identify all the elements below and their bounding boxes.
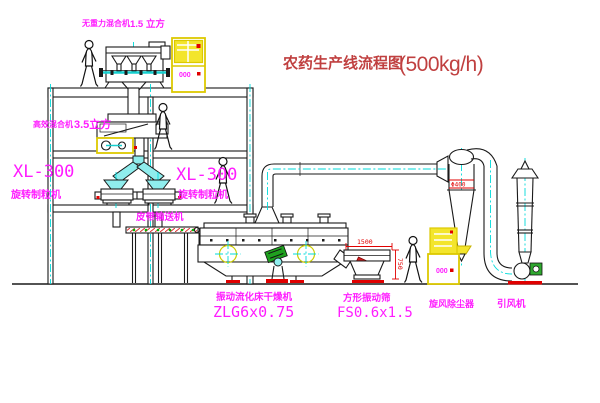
page-title: 农药生产线流程图 (282, 54, 403, 72)
label-efficiency-mixer-size: 3.5立方 (74, 117, 111, 131)
cyclone-downpipe (484, 160, 512, 281)
diagram-canvas: 000 (0, 0, 600, 403)
production-line-drawing: 000 (0, 0, 600, 403)
label-gravity-mixer: 无重力混合机 (81, 18, 130, 28)
sieve-height-dimension: 750 (396, 258, 404, 270)
induced-draft-fan (508, 263, 542, 285)
label-sieve-name: 方形振动筛 (343, 292, 391, 304)
person-figure-ground (405, 237, 423, 283)
control-cabinet-right: 000 (428, 228, 459, 284)
control-cabinet-top: 000 (172, 38, 205, 92)
label-belt-conveyor: 皮带输送机 (135, 211, 184, 223)
belt-conveyor (126, 227, 208, 283)
label-granulator-center-model: XL-300 (176, 165, 237, 185)
cyclone-diameter-note: Φ400 (451, 182, 466, 189)
label-sieve-model: FS0.6x1.5 (337, 305, 413, 321)
granulator-left (95, 172, 139, 227)
label-dryer-name: 振动流化床干燥机 (216, 291, 293, 303)
label-granulator-left-name: 旋转制粒机 (10, 188, 61, 201)
label-granulator-left-model: XL-300 (13, 162, 74, 182)
cabinet-right-display: 000 (436, 268, 448, 275)
exhaust-duct (262, 156, 448, 210)
label-efficiency-mixer: 高效混合机 (33, 119, 73, 129)
page-title-capacity: (500kg/h) (399, 53, 483, 76)
fluid-bed-dryer (198, 207, 352, 283)
cabinet-top-display: 000 (179, 72, 191, 79)
sieve-width-dimension: 1500 (357, 238, 373, 246)
label-granulator-center-name: 旋转制粒机 (177, 188, 228, 201)
vibrating-sieve: 1500 750 (344, 238, 404, 283)
label-cyclone: 旋风除尘器 (428, 298, 475, 309)
y-chute (113, 156, 164, 182)
label-fan: 引风机 (497, 298, 526, 310)
person-figure-roof (81, 41, 99, 87)
label-dryer-model: ZLG6x0.75 (213, 303, 294, 321)
label-gravity-mixer-size: 1.5 立方 (130, 18, 165, 30)
